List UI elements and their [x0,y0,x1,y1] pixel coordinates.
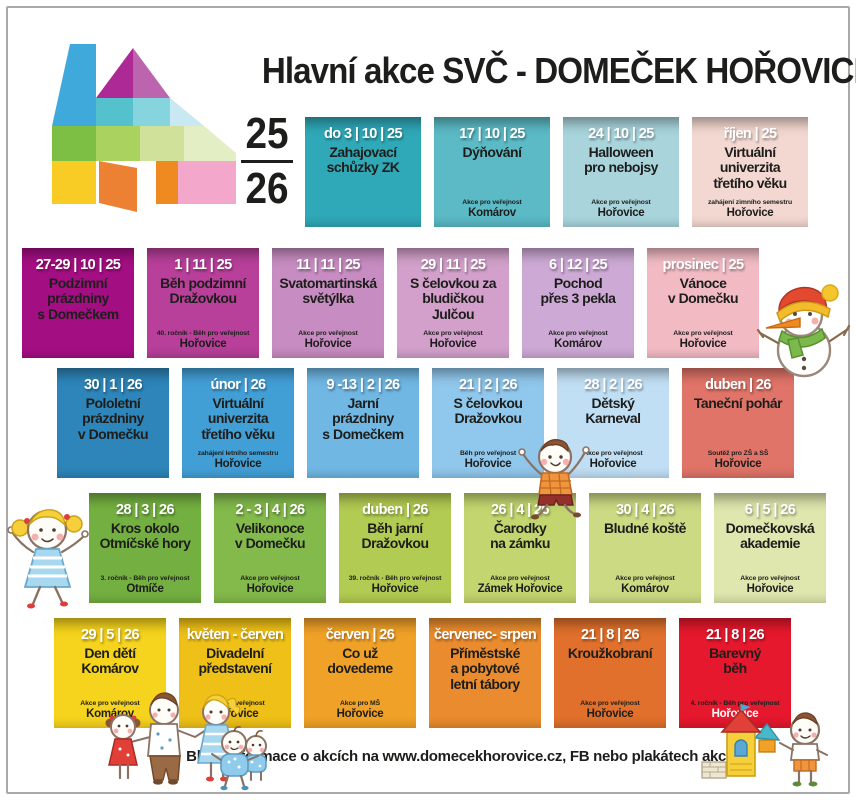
event-card: 30 | 1 | 26Pololetní prázdniny v Domečku [57,368,169,478]
event-location: Hořovice [727,207,774,219]
event-date: květen - červen [187,627,284,643]
event-location: Hořovice [465,458,512,470]
event-row: 30 | 1 | 26Pololetní prázdniny v Domečku… [57,368,794,478]
event-note: Běh pro veřejnost [460,450,516,457]
event-title: Vánoce v Domečku [668,276,738,307]
event-title: Kroužkobraní [568,646,652,661]
event-note: Akce pro veřejnost [423,330,482,337]
event-card: červenec- srpenPříměstské a pobytové let… [429,618,541,728]
event-date: 29 | 5 | 26 [81,627,139,643]
page-title: Hlavní akce SVČ - DOMEČEK HOŘOVICE [262,50,810,92]
event-date: 21 | 8 | 26 [581,627,639,643]
event-date: 2 - 3 | 4 | 26 [235,502,304,518]
event-location: Hořovice [598,207,645,219]
school-year-bottom: 26 [244,167,290,210]
school-year-top: 25 [244,112,290,155]
snowman-illustration [754,270,856,382]
event-note: Akce pro veřejnost [740,575,799,582]
event-date: 30 | 4 | 26 [616,502,674,518]
event-note: 39. ročník - Běh pro veřejnost [349,575,442,582]
event-note: Akce pro veřejnost [240,575,299,582]
event-date: 17 | 10 | 25 [459,126,524,142]
event-date: říjen | 25 [724,126,777,142]
event-card: 17 | 10 | 25DýňováníAkce pro veřejnostKo… [434,117,550,227]
event-card: únor | 26Virtuální univerzita třetího vě… [182,368,294,478]
event-location: Komárov [554,338,602,350]
event-date: únor | 26 [210,377,265,393]
event-title: Běh jarní Dražovkou [361,521,428,552]
event-date: 30 | 1 | 26 [84,377,142,393]
event-row: 28 | 3 | 26Kros okolo Otmíčské hory3. ro… [89,493,826,603]
event-note: Akce pro veřejnost [298,330,357,337]
event-card: 6 | 5 | 26Domečkovská akademieAkce pro v… [714,493,826,603]
event-title: Jarní prázdniny s Domečkem [322,396,403,442]
event-title: Svatomartinská světýlka [279,276,376,307]
event-note: zahájení zimního semestru [708,199,792,206]
event-title: Příměstské a pobytové letní tábory [450,646,520,692]
event-card: 30 | 4 | 26Bludné koštěAkce pro veřejnos… [589,493,701,603]
event-title: Virtuální univerzita třetího věku [201,396,274,442]
event-date: prosinec | 25 [663,257,744,273]
event-note: Akce pro veřejnost [580,700,639,707]
event-card: říjen | 25Virtuální univerzita třetího v… [692,117,808,227]
jumping-boy-illustration [513,430,598,520]
event-location: Komárov [621,583,669,595]
event-title: S čelovkou Dražovkou [454,396,523,427]
event-note: Akce pro veřejnost [548,330,607,337]
event-title: Velikonoce v Domečku [235,521,305,552]
event-title: Divadelní představení [198,646,271,677]
event-card: 11 | 11 | 25Svatomartinská světýlkaAkce … [272,248,384,358]
event-title: Podzimní prázdniny s Domečkem [37,276,118,322]
event-date: do 3 | 10 | 25 [324,126,402,142]
event-date: 28 | 3 | 26 [116,502,174,518]
event-card: 27-29 | 10 | 25Podzimní prázdniny s Dome… [22,248,134,358]
event-note: Soutěž pro ZŠ a SŠ [708,450,769,457]
event-date: 11 | 11 | 25 [296,257,360,273]
event-title: Halloween pro nebojsy [584,145,658,176]
event-date: 1 | 11 | 25 [174,257,231,273]
event-date: 29 | 11 | 25 [421,257,486,273]
event-card: prosinec | 25Vánoce v DomečkuAkce pro ve… [647,248,759,358]
event-row: do 3 | 10 | 25Zahajovací schůzky ZK17 | … [305,117,808,227]
event-title: Bludné koště [604,521,686,536]
event-date: duben | 26 [362,502,428,518]
event-title: Pololetní prázdniny v Domečku [78,396,148,442]
event-date: 6 | 12 | 25 [549,257,607,273]
event-location: Zámek Hořovice [478,583,563,595]
event-card: 21 | 8 | 26KroužkobraníAkce pro veřejnos… [554,618,666,728]
house-logo-icon [52,36,236,216]
event-note: Akce pro veřejnost [615,575,674,582]
family-illustration [88,680,303,790]
event-location: Hořovice [180,338,227,350]
event-row: 27-29 | 10 | 25Podzimní prázdniny s Dome… [22,248,759,358]
event-date: 27-29 | 10 | 25 [36,257,121,273]
event-date: 21 | 8 | 26 [706,627,764,643]
school-year-divider [241,160,293,163]
event-card: duben | 26Běh jarní Dražovkou39. ročník … [339,493,451,603]
event-location: Hořovice [215,458,262,470]
event-location: Hořovice [372,583,419,595]
event-location: Hořovice [430,338,477,350]
event-date: 6 | 5 | 26 [745,502,796,518]
event-location: Komárov [468,207,516,219]
event-title: Barevný běh [709,646,761,677]
event-location: Hořovice [680,338,727,350]
event-note: 3. ročník - Běh pro veřejnost [101,575,190,582]
event-location: Hořovice [337,708,384,720]
event-title: S čelovkou za bludičkou Julčou [401,276,505,322]
event-card: 9 -13 | 2 | 26Jarní prázdniny s Domečkem [307,368,419,478]
event-card: 29 | 11 | 25S čelovkou za bludičkou Julč… [397,248,509,358]
event-card: 24 | 10 | 25Halloween pro nebojsyAkce pr… [563,117,679,227]
event-date: 28 | 2 | 26 [584,377,642,393]
jumping-girl-illustration [0,494,100,610]
school-year: 25 26 [241,112,293,210]
event-title: Dětský Karneval [585,396,640,427]
event-location: Hořovice [305,338,352,350]
event-card: 2 - 3 | 4 | 26Velikonoce v DomečkuAkce p… [214,493,326,603]
event-title: Pochod přes 3 pekla [541,276,616,307]
event-title: Domečkovská akademie [726,521,815,552]
event-location: Hořovice [247,583,294,595]
event-note: Akce pro veřejnost [490,575,549,582]
boy-building-house-illustration [697,702,842,790]
event-date: červenec- srpen [434,627,536,643]
event-poster: Hlavní akce SVČ - DOMEČEK HOŘOVICE 25 26… [0,0,856,800]
toddler-illustration [208,726,266,792]
event-note: Akce pro veřejnost [462,199,521,206]
event-date: červen | 26 [326,627,394,643]
event-title: Kros okolo Otmíčské hory [100,521,191,552]
event-title: Virtuální univerzita třetího věku [713,145,786,191]
event-location: Hořovice [715,458,762,470]
event-location: Otmíče [126,583,163,595]
event-date: 24 | 10 | 25 [588,126,653,142]
event-title: Taneční pohár [694,396,782,411]
event-title: Co už dovedeme [308,646,412,677]
event-card: duben | 26Taneční pohárSoutěž pro ZŠ a S… [682,368,794,478]
event-location: Hořovice [747,583,794,595]
event-note: zahájení letního semestru [198,450,279,457]
event-title: Čarodky na zámku [490,521,550,552]
event-card: 6 | 12 | 25Pochod přes 3 peklaAkce pro v… [522,248,634,358]
event-note: Akce pro veřejnost [673,330,732,337]
event-card: 28 | 3 | 26Kros okolo Otmíčské hory3. ro… [89,493,201,603]
event-date: 9 -13 | 2 | 26 [326,377,399,393]
event-date: 21 | 2 | 26 [459,377,517,393]
event-location: Hořovice [587,708,634,720]
event-card: do 3 | 10 | 25Zahajovací schůzky ZK [305,117,421,227]
event-title: Dýňování [462,145,521,160]
event-card: 1 | 11 | 25Běh podzimní Dražovkou40. roč… [147,248,259,358]
event-card: červen | 26Co už dovedemeAkce pro MŠHořo… [304,618,416,728]
event-title: Zahajovací schůzky ZK [327,145,400,176]
event-title: Den dětí Komárov [81,646,138,677]
event-title: Běh podzimní Dražovkou [160,276,246,307]
event-note: Akce pro veřejnost [591,199,650,206]
event-note: 40. ročník - Běh pro veřejnost [157,330,250,337]
event-note: Akce pro MŠ [340,700,380,707]
